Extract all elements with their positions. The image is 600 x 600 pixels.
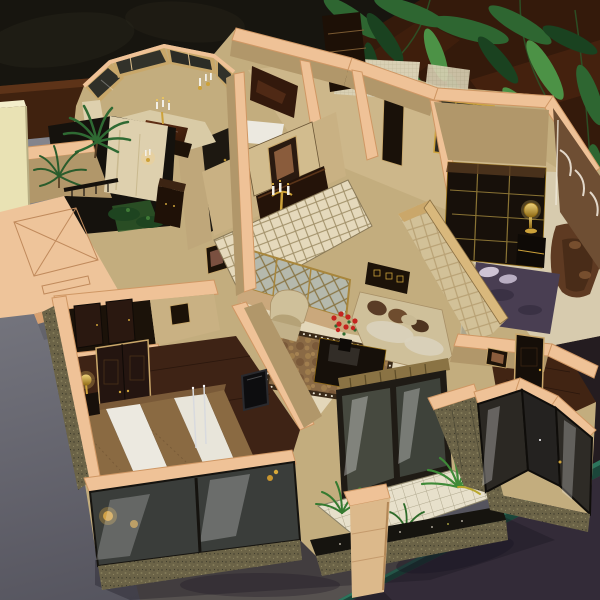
lamp-stem xyxy=(86,384,87,394)
model-photo-canvas xyxy=(0,0,600,600)
red-flower xyxy=(351,326,355,330)
candle-flame xyxy=(162,97,164,99)
candle xyxy=(272,186,275,195)
candle xyxy=(156,102,158,109)
door-knob xyxy=(128,319,130,321)
dark-wood-cabinet xyxy=(154,186,184,228)
door-knob xyxy=(119,391,121,393)
planter-flower xyxy=(461,520,463,522)
candle xyxy=(162,100,164,107)
sconce-candle xyxy=(145,150,147,156)
red-flower xyxy=(338,311,343,316)
study-back-wall xyxy=(434,102,549,166)
orange-flower xyxy=(267,475,273,481)
red-flower xyxy=(343,324,348,329)
gold-glint xyxy=(224,159,227,162)
door-knob xyxy=(539,369,541,371)
red-flower xyxy=(336,321,341,326)
gold-wall-sconce xyxy=(206,82,210,86)
leaf-shadow xyxy=(180,573,340,597)
candle-flame xyxy=(272,183,274,185)
planter-flower xyxy=(447,523,449,525)
red-flower xyxy=(345,314,350,319)
glass-sparkle xyxy=(539,439,541,441)
orange-flower xyxy=(274,470,278,474)
sofa-highlight xyxy=(569,241,581,249)
candle xyxy=(287,186,290,195)
wall-tv xyxy=(242,370,268,410)
red-flower xyxy=(336,328,340,332)
flower-leaf xyxy=(347,320,350,323)
pole-glint xyxy=(203,385,205,387)
sconce-candle xyxy=(149,149,151,155)
photo-of-architectural-model xyxy=(0,0,600,600)
candelabra-stem xyxy=(281,192,282,212)
sconce-candle xyxy=(205,74,207,81)
small-frame xyxy=(170,303,190,325)
sconce-candle xyxy=(210,73,212,80)
planter-flower xyxy=(431,526,433,528)
babys-breath xyxy=(350,323,352,325)
gold-sparkle xyxy=(559,461,562,464)
candle-flame xyxy=(168,100,170,102)
candle-flame xyxy=(287,183,289,185)
gold-sconce xyxy=(198,86,202,90)
door-knob xyxy=(127,390,129,392)
gold-table-lamp xyxy=(524,203,538,217)
babys-breath xyxy=(343,311,345,313)
candle-flame xyxy=(156,99,158,101)
sconce-candle xyxy=(199,78,201,86)
architectural-model xyxy=(0,12,600,600)
black-vase xyxy=(338,338,352,352)
red-flower xyxy=(352,318,357,323)
shrub-highlight xyxy=(146,216,150,220)
planter-flower xyxy=(339,543,341,545)
black-side-table xyxy=(516,234,546,268)
dark-door-panel xyxy=(382,98,404,166)
candle xyxy=(279,183,282,192)
closet-door xyxy=(106,299,135,344)
planter-flower xyxy=(399,531,401,533)
gold-sconce xyxy=(146,158,150,162)
candle xyxy=(168,103,170,110)
cabinet-pull xyxy=(165,203,167,205)
bed-mottle xyxy=(518,305,542,315)
shrub-highlight xyxy=(126,208,130,212)
cabinet-pull xyxy=(173,205,175,207)
flower-leaf xyxy=(342,332,345,335)
sofa-highlight xyxy=(579,271,591,279)
candelabra-stem xyxy=(162,112,163,124)
closet-door xyxy=(74,303,103,348)
red-flower xyxy=(331,315,336,320)
lamp-base xyxy=(525,229,537,234)
pole-glint xyxy=(192,387,194,389)
shrub xyxy=(108,207,140,221)
door-knob xyxy=(96,324,98,326)
candle-flame xyxy=(279,180,281,182)
